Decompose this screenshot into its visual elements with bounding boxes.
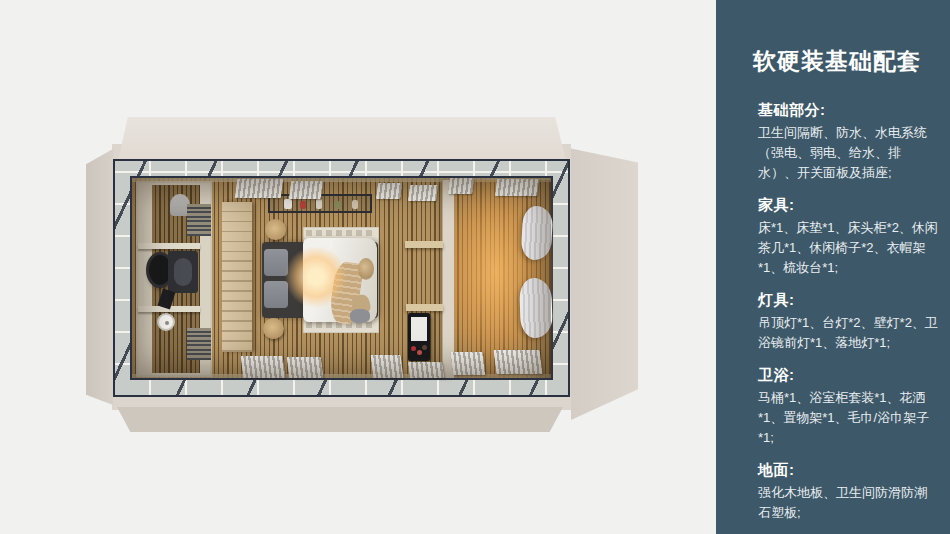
section-basics: 基础部分: 卫生间隔断、防水、水电系统（强电、弱电、给水、排水）、开关面板及插座… — [758, 101, 938, 183]
wardrobe — [222, 202, 252, 352]
section-heading: 灯具: — [758, 291, 938, 310]
fridge-item — [417, 350, 422, 355]
shell-flap-right — [571, 140, 638, 420]
window-blind — [235, 179, 283, 198]
section-heading: 家具: — [758, 196, 938, 215]
bed-pillow — [264, 249, 288, 276]
section-body: 床*1、床垫*1、床头柜*2、休闲茶几*1、休闲椅子*2、衣帽架*1、梳妆台*1… — [758, 218, 938, 278]
section-heading: 地面: — [758, 461, 938, 480]
vanity-basin — [174, 258, 192, 286]
sidebar-title: 软硬装基础配套 — [736, 46, 938, 77]
dried-plant-decor — [358, 258, 374, 280]
shell-flap-bottom — [117, 407, 563, 432]
section-bathroom: 卫浴: 马桶*1、浴室柜套装*1、花洒*1、置物架*1、毛巾/浴巾架子*1; — [758, 366, 938, 448]
section-body: 吊顶灯*1、台灯*2、壁灯*2、卫浴镜前灯*1、落地灯*1; — [758, 313, 938, 353]
section-flooring: 地面: 强化木地板、卫生间防滑防潮石塑板; — [758, 461, 938, 523]
window-blind — [448, 178, 474, 194]
toilet — [157, 313, 175, 331]
rack-bottle — [300, 201, 306, 209]
woven-pouf — [265, 219, 286, 240]
partition-wall — [442, 180, 454, 378]
section-body: 强化木地板、卫生间防滑防潮石塑板; — [758, 483, 938, 523]
section-heading: 基础部分: — [758, 101, 938, 120]
window-blind — [376, 183, 402, 199]
window-blind — [408, 185, 438, 201]
window-blind — [371, 355, 404, 378]
wall-shelf — [405, 241, 443, 248]
rack-bottle — [316, 199, 322, 209]
window-blind — [408, 362, 444, 378]
towel-rack — [187, 328, 211, 360]
section-lighting: 灯具: 吊顶灯*1、台灯*2、壁灯*2、卫浴镜前灯*1、落地灯*1; — [758, 291, 938, 353]
towel-rack — [187, 204, 211, 236]
section-body: 卫生间隔断、防水、水电系统（强电、弱电、给水、排水）、开关面板及插座; — [758, 123, 938, 183]
rack-bottle — [334, 201, 341, 209]
shell-flap-left — [86, 149, 113, 405]
info-sidebar: 软硬装基础配套 基础部分: 卫生间隔断、防水、水电系统（强电、弱电、给水、排水）… — [716, 0, 950, 534]
window-blind — [495, 179, 539, 196]
window-blind — [494, 350, 543, 374]
bathroom-divider-shelf — [138, 243, 200, 249]
window-blind — [451, 352, 486, 375]
sidebar-sections: 基础部分: 卫生间隔断、防水、水电系统（强电、弱电、给水、排水）、开关面板及插座… — [758, 101, 938, 523]
window-blind — [241, 356, 286, 378]
window-blind — [289, 181, 323, 199]
rug-pattern — [306, 230, 376, 236]
fridge-interior — [411, 317, 427, 341]
rack-bottle — [352, 200, 358, 209]
rack-bottle — [284, 199, 292, 209]
window-blind — [287, 357, 324, 378]
bed-cushion — [350, 309, 370, 323]
section-body: 马桶*1、浴室柜套装*1、花洒*1、置物架*1、毛巾/浴巾架子*1; — [758, 388, 938, 448]
woven-pouf — [263, 318, 284, 339]
fridge-item — [422, 345, 427, 350]
wall-shelf — [406, 304, 443, 311]
window-curtain — [519, 277, 553, 338]
shell-flap-top — [118, 117, 566, 161]
floorplan-render — [0, 0, 716, 534]
section-heading: 卫浴: — [758, 366, 938, 385]
slide-canvas: 软硬装基础配套 基础部分: 卫生间隔断、防水、水电系统（强电、弱电、给水、排水）… — [0, 0, 950, 534]
bed-pillow — [264, 281, 288, 308]
fridge-item — [411, 346, 416, 351]
section-furniture: 家具: 床*1、床垫*1、床头柜*2、休闲茶几*1、休闲椅子*2、衣帽架*1、梳… — [758, 196, 938, 278]
